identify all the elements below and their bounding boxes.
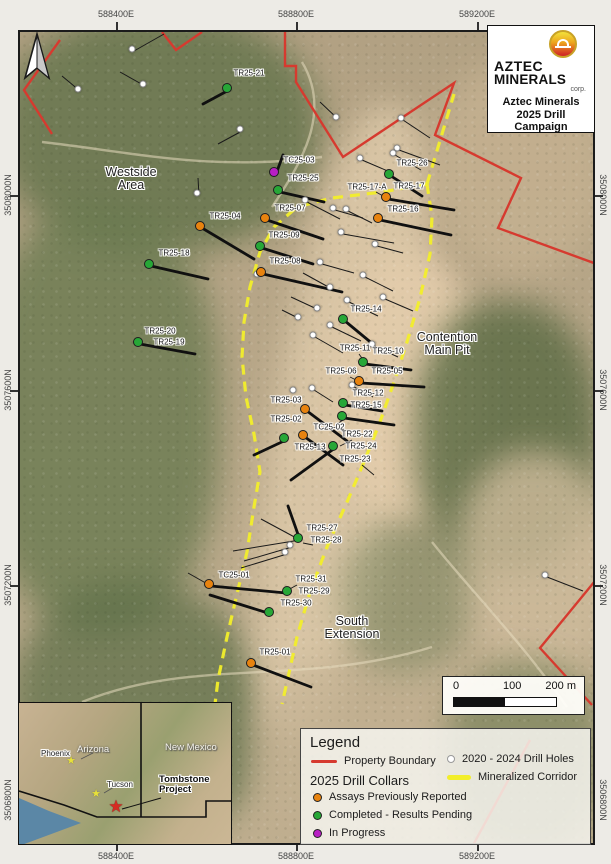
scale-bar-graphic <box>453 697 557 707</box>
coord-right-4: 3506800N <box>598 779 608 821</box>
legend-in-progress-label: In Progress <box>329 827 385 839</box>
scale-200m: 200 m <box>545 680 576 692</box>
tick <box>296 22 298 30</box>
inset-tombstone-project-label: Tombstone Project <box>159 775 223 795</box>
map-title: Aztec Minerals 2025 Drill Campaign <box>488 96 594 134</box>
map-page: TR25-21TC25-03TR25-25TR25-26TR25-17-ATR2… <box>0 0 611 864</box>
scale-bar: 0 100 200 m <box>442 676 585 715</box>
in-progress-dot-icon <box>313 829 322 838</box>
title-box: AZTEC MINERALS corp. Aztec Minerals 2025… <box>487 25 595 133</box>
tick <box>116 22 118 30</box>
legend-title: Legend <box>310 734 360 751</box>
property-boundary-line-icon <box>311 760 337 763</box>
tick <box>477 22 479 30</box>
tombstone-star-icon: ★ <box>108 797 123 817</box>
inset-new-mexico-label: New Mexico <box>165 742 217 753</box>
tick <box>296 845 298 851</box>
coord-top-1: 588400E <box>98 9 134 19</box>
logo-hill-shape <box>557 39 569 46</box>
completed-dot-icon <box>313 811 322 820</box>
brand-corp: corp. <box>570 86 586 93</box>
aztec-logo-icon <box>549 30 577 58</box>
tick <box>595 195 603 197</box>
phoenix-star-icon: ★ <box>66 754 76 767</box>
logo-base-shape <box>555 46 571 48</box>
coord-top-2: 588800E <box>278 9 314 19</box>
coord-bottom-2: 588800E <box>278 851 314 861</box>
area-label-south-extension: SouthExtension <box>325 615 380 640</box>
tick <box>595 585 603 587</box>
ocean-shape <box>19 798 81 845</box>
north-arrow-icon <box>20 32 54 82</box>
scale-0: 0 <box>453 680 459 692</box>
coord-bottom-3: 589200E <box>459 851 495 861</box>
legend-corridor-label: Mineralized Corridor <box>478 771 577 783</box>
tick <box>10 585 18 587</box>
assays-reported-dot-icon <box>313 793 322 802</box>
legend-collars-heading: 2025 Drill Collars <box>310 773 409 788</box>
tick <box>10 195 18 197</box>
legend: Legend Property Boundary 2020 - 2024 Dri… <box>300 728 591 845</box>
tick <box>477 845 479 851</box>
coord-bottom-1: 588400E <box>98 851 134 861</box>
legend-property-boundary-label: Property Boundary <box>344 755 436 767</box>
tick <box>595 390 603 392</box>
area-label-contention: ContentionMain Pit <box>417 331 477 356</box>
legend-assays-label: Assays Previously Reported <box>329 791 467 803</box>
area-label-westside: WestsideArea <box>105 166 156 191</box>
brand-name-line2: MINERALS <box>494 72 566 87</box>
legend-prev-holes-label: 2020 - 2024 Drill Holes <box>462 753 574 765</box>
mineralized-corridor-line-icon <box>447 775 471 780</box>
tucson-star-icon: ★ <box>91 787 101 800</box>
legend-completed-label: Completed - Results Pending <box>329 809 472 821</box>
coord-top-3: 589200E <box>459 9 495 19</box>
tick <box>10 390 18 392</box>
tick <box>116 845 118 851</box>
inset-tucson-label: Tucson <box>107 780 133 789</box>
scale-100: 100 <box>503 680 521 692</box>
inset-arizona-label: Arizona <box>77 744 109 755</box>
coord-left-4: 3506800N <box>3 779 13 821</box>
prev-drill-hole-icon <box>447 755 455 763</box>
inset-location-map: Arizona New Mexico Phoenix ★ Tucson ★ To… <box>18 702 232 845</box>
